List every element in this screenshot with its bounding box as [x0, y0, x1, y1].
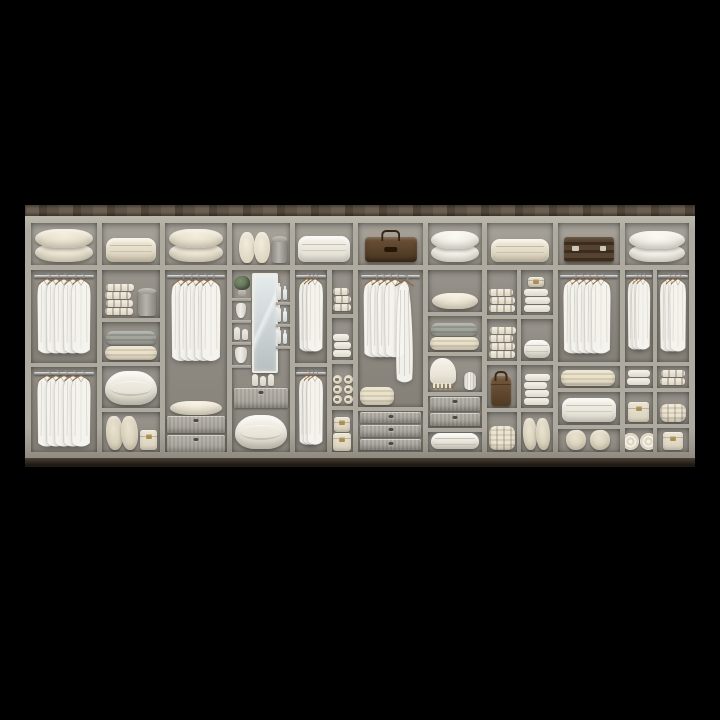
compartment-col11R-linens	[657, 366, 689, 388]
compartment-col10-duvet	[558, 392, 620, 425]
pillow	[35, 229, 93, 248]
folded-linens	[106, 300, 133, 307]
drawer-knob	[388, 415, 393, 418]
hanging-dress	[392, 274, 417, 386]
compartment-col5-hanging-lower	[295, 367, 327, 452]
jar	[242, 329, 248, 340]
folded-linens	[490, 297, 515, 304]
folded-duvet	[524, 340, 550, 358]
leaning-pillow	[535, 418, 551, 451]
storage-box	[140, 430, 157, 450]
bottle	[277, 308, 281, 322]
folded-linens	[525, 374, 550, 381]
rolled-socks	[333, 385, 342, 394]
storage-box	[333, 433, 351, 451]
drawer	[430, 413, 480, 427]
knit-blanket	[489, 426, 515, 450]
rolled-socks	[333, 375, 342, 384]
wardrobe-top-trim	[25, 205, 695, 216]
bottle	[277, 330, 281, 344]
round-box	[138, 290, 156, 316]
jar	[252, 374, 258, 386]
drawer-knob	[259, 391, 264, 394]
jar	[260, 376, 266, 386]
storage-box	[528, 277, 544, 287]
hanging-shirt	[589, 273, 613, 357]
mini-shelf	[232, 298, 251, 301]
compartment-col9R-towels	[521, 365, 553, 408]
vase	[236, 303, 246, 318]
folded-linens	[106, 284, 134, 291]
jar	[234, 327, 240, 340]
compartment-col9L-linens-1	[487, 270, 517, 315]
compartment-col9L-linens-2	[487, 319, 517, 361]
drawer-knob	[453, 416, 458, 419]
folded-duvet	[298, 236, 350, 262]
knit-blanket	[105, 346, 157, 360]
ribbed-vase	[464, 372, 476, 390]
rolled-socks	[344, 385, 353, 394]
knit-blanket	[360, 387, 394, 405]
compartment-col9L-knit-pillow	[487, 412, 517, 452]
compartment-col8-pillow	[428, 270, 482, 312]
rolled-duvet	[235, 415, 287, 449]
compartment-col8-drawers	[428, 396, 482, 428]
compartment-col8-duvet	[428, 432, 482, 452]
cushion	[254, 232, 270, 263]
compartment-top-shelf-suitcase	[358, 223, 423, 265]
mirror	[252, 273, 278, 373]
pillow	[629, 231, 685, 249]
hanging-shirt	[69, 273, 93, 357]
compartment-col11L-towels	[625, 366, 653, 388]
pillow	[169, 229, 223, 248]
folded-duvet	[491, 239, 549, 262]
hanging-shirt	[69, 370, 93, 450]
compartment-col8-knits	[428, 316, 482, 352]
folded-linens	[334, 296, 351, 303]
drawer	[360, 412, 421, 423]
rolled-socks	[333, 395, 342, 404]
knit-blanket	[430, 337, 479, 350]
pillow	[432, 293, 478, 309]
drawer	[360, 425, 421, 436]
compartment-col9R-duvet	[521, 319, 553, 361]
pillow	[431, 231, 479, 249]
storage-box	[334, 417, 350, 432]
compartment-col3-hanging-drawers	[165, 270, 227, 452]
hanging-shirt	[634, 273, 652, 353]
round-box	[272, 238, 287, 263]
folded-linens	[489, 305, 515, 312]
folded-linens	[489, 351, 515, 358]
rolled-socks	[344, 395, 353, 404]
drawer	[167, 416, 225, 433]
folded-duvet	[431, 433, 479, 449]
compartment-top-shelf-pillows-1	[31, 223, 97, 265]
compartment-col11R-hanging	[657, 270, 689, 362]
folded-linens	[490, 327, 516, 334]
bottle	[283, 333, 287, 344]
compartment-col10-knit	[558, 366, 620, 388]
compartment-col9L-leather-bag	[487, 365, 517, 408]
drawer	[430, 397, 480, 411]
compartment-col10-pillows	[558, 429, 620, 452]
compartment-top-shelf-pillows-3	[428, 223, 482, 265]
leather-bag	[491, 376, 511, 406]
leaning-pillow	[120, 416, 139, 451]
compartment-col7-hanging-dress	[358, 270, 423, 407]
knit-blanket	[660, 404, 686, 422]
compartment-col6-sock-rolls	[332, 364, 353, 406]
compartment-col4-vanity	[232, 270, 290, 452]
compartment-col2-pillows-box	[102, 412, 160, 452]
compartment-col11L-knit-rolls	[625, 428, 653, 452]
storage-box	[628, 402, 649, 422]
folded-linens	[333, 334, 349, 341]
folded-linens	[489, 289, 513, 296]
folded-linens	[525, 390, 549, 397]
wooden-chest	[564, 237, 614, 262]
compartment-top-shelf-blanket	[487, 223, 553, 265]
compartment-col10-hanging	[558, 270, 620, 362]
folded-linens	[105, 308, 133, 315]
wardrobe	[25, 205, 695, 458]
mini-shelf	[232, 365, 251, 368]
compartment-top-shelf-chest	[558, 223, 620, 265]
compartment-col11L-hanging	[625, 270, 653, 362]
drawer-knob	[194, 419, 199, 422]
compartment-top-shelf-pillows-2	[165, 223, 227, 265]
mini-shelf	[232, 320, 251, 323]
bottle	[277, 286, 281, 300]
compartment-col11L-box	[625, 392, 653, 424]
potted-plant	[234, 276, 250, 296]
rolled-socks	[344, 375, 353, 384]
compartment-col6-white-linens	[332, 318, 353, 360]
folded-linens	[524, 398, 549, 405]
folded-duvet	[562, 398, 616, 422]
hanging-shirt	[668, 273, 688, 355]
product-image-canvas	[0, 0, 720, 720]
mini-shelf	[276, 346, 290, 349]
pillow	[170, 401, 222, 415]
bottle	[283, 311, 287, 322]
drawer-knob	[388, 428, 393, 431]
wardrobe-plinth	[25, 458, 695, 467]
knit-roll	[640, 433, 654, 450]
suitcase	[365, 237, 417, 262]
plant-foliage	[234, 276, 249, 290]
drawer	[234, 388, 288, 408]
mini-shelf	[232, 342, 251, 345]
knit-blanket	[431, 323, 477, 336]
compartment-col8-basket	[428, 356, 482, 392]
folded-linens	[333, 350, 351, 357]
knit-blanket	[106, 331, 156, 345]
folded-linens	[105, 292, 131, 299]
compartment-col11R-box	[657, 428, 689, 452]
folded-linens	[524, 382, 547, 389]
vase	[235, 347, 247, 363]
compartment-col9R-pillows	[521, 412, 553, 452]
cushion	[239, 232, 255, 263]
folded-linens	[660, 378, 685, 385]
folded-linens	[489, 335, 513, 342]
drawer-knob	[453, 400, 458, 403]
folded-linens	[524, 289, 548, 296]
folded-linens	[490, 343, 515, 350]
folded-linens	[627, 378, 650, 385]
throw-blanket	[430, 358, 456, 384]
compartment-col6-boxes	[332, 410, 353, 452]
compartment-top-shelf-pillows-4	[625, 223, 689, 265]
folded-linens	[333, 304, 351, 311]
compartment-col1-hanging-upper	[31, 270, 97, 363]
compartment-col6-patterned-linens	[332, 270, 353, 314]
hanging-shirt	[305, 273, 325, 355]
leaning-pillow	[565, 429, 586, 450]
folded-linens	[525, 297, 550, 304]
folded-linens	[524, 305, 550, 312]
compartment-col5-hanging-upper	[295, 270, 327, 363]
folded-linens	[333, 288, 349, 295]
knit-roll	[625, 433, 639, 450]
hanging-shirt	[199, 273, 223, 365]
compartment-col9R-linens-box	[521, 270, 553, 315]
plant-pot	[238, 290, 245, 296]
compartment-top-shelf-duvet-2	[295, 223, 353, 265]
compartment-col11R-knit	[657, 392, 689, 424]
hanging-shirt	[305, 370, 325, 448]
leaning-pillow	[589, 429, 610, 450]
drawer	[167, 435, 225, 452]
compartment-col7-drawers	[358, 411, 423, 452]
drawer-knob	[388, 442, 393, 445]
compartment-top-shelf-duvet-1	[102, 223, 160, 265]
knit-blanket	[561, 370, 615, 386]
drawer-knob	[194, 438, 199, 441]
bottle	[283, 289, 287, 300]
folded-linens	[628, 370, 650, 377]
compartment-col2-knit-blankets	[102, 322, 160, 362]
jar	[268, 374, 274, 386]
folded-linens	[334, 342, 351, 349]
compartment-col1-hanging-lower	[31, 367, 97, 452]
compartment-col2-linens-hatbox	[102, 270, 160, 318]
folded-duvet	[106, 238, 156, 262]
storage-box	[663, 432, 683, 450]
drawer	[360, 439, 421, 450]
rolled-duvet	[105, 371, 157, 405]
compartment-top-shelf-cushions	[232, 223, 290, 265]
compartment-col2-rolled-duvet	[102, 366, 160, 408]
folded-linens	[661, 370, 685, 377]
